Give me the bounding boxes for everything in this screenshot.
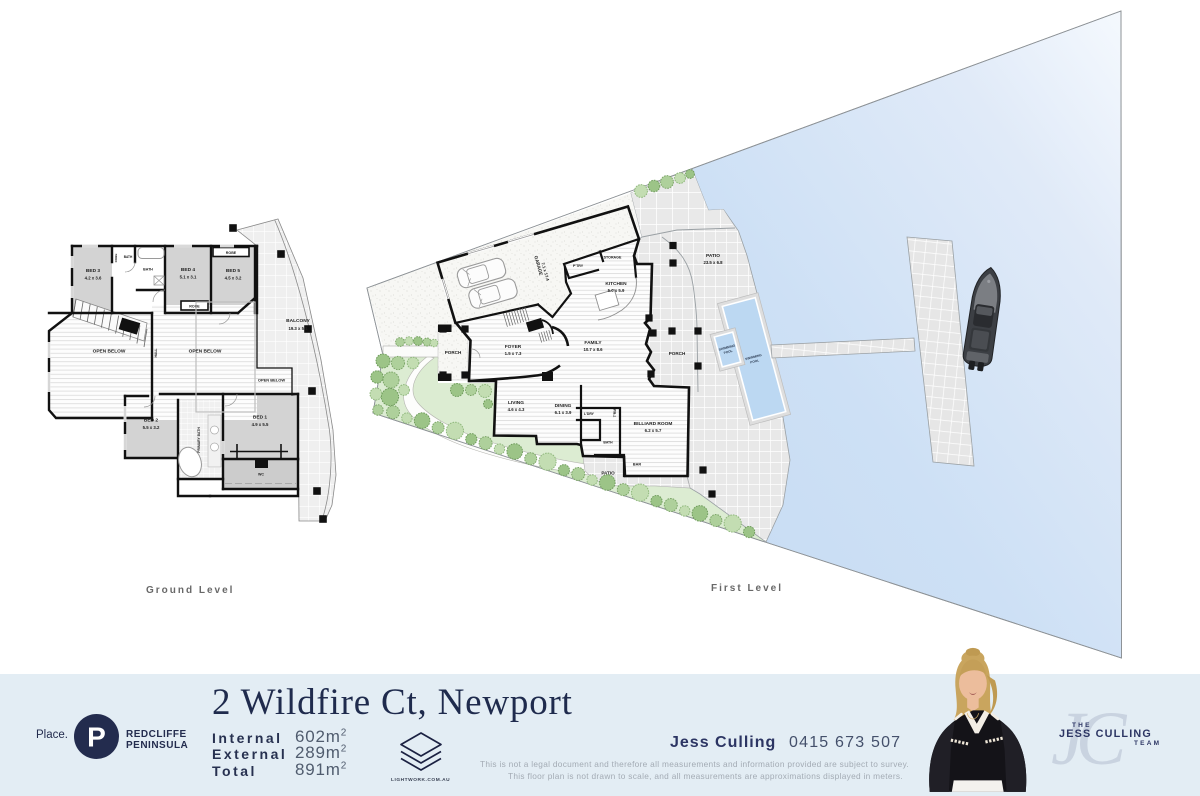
svg-text:6.1 x 3.9: 6.1 x 3.9 [555,410,572,415]
svg-text:ROBE: ROBE [189,305,200,309]
svg-text:4.6 x 4.3: 4.6 x 4.3 [508,407,525,412]
svg-text:4.5 x 3.2: 4.5 x 3.2 [225,276,242,281]
svg-text:OPEN BELOW: OPEN BELOW [258,378,286,383]
svg-text:4.9 x 5.5: 4.9 x 5.5 [252,422,269,427]
svg-text:PORCH: PORCH [445,350,462,355]
svg-text:5.5 x 3.2: 5.5 x 3.2 [143,425,160,430]
svg-text:4.2 x 3.6: 4.2 x 3.6 [85,276,102,281]
svg-text:BATH: BATH [143,268,153,272]
svg-text:FOYER: FOYER [505,344,522,350]
svg-text:PATIO: PATIO [706,253,720,259]
svg-text:BAR: BAR [633,463,641,467]
svg-text:PORCH: PORCH [669,351,686,356]
svg-text:WC: WC [258,473,264,477]
svg-text:BED 1: BED 1 [253,415,267,421]
svg-text:KITCHEN: KITCHEN [605,281,627,287]
svg-text:FAMILY: FAMILY [584,340,602,346]
svg-text:First Level: First Level [711,583,783,594]
svg-text:5.1 x 3.1: 5.1 x 3.1 [180,275,197,280]
svg-text:BALCONY: BALCONY [286,318,311,324]
svg-text:BED 4: BED 4 [181,267,195,273]
svg-text:PRIMARY BATH: PRIMARY BATH [197,427,201,453]
svg-text:T'RM: T'RM [613,409,617,417]
svg-text:BATH: BATH [124,255,133,259]
svg-text:BILLIARD ROOM: BILLIARD ROOM [634,421,673,427]
svg-text:10.7 x 8.6: 10.7 x 8.6 [583,347,603,352]
svg-text:PATIO: PATIO [601,471,615,476]
svg-text:OPEN BELOW: OPEN BELOW [189,349,222,355]
svg-text:1.5 x 7.3: 1.5 x 7.3 [505,351,522,356]
svg-text:ROBE: ROBE [114,254,118,263]
svg-text:BED 5: BED 5 [226,268,240,274]
svg-text:P: P [87,722,106,753]
svg-text:L'DRY: L'DRY [584,412,595,416]
svg-text:BED 2: BED 2 [144,418,158,424]
svg-text:6.2 x 5.7: 6.2 x 5.7 [645,428,662,433]
svg-text:Ground Level: Ground Level [146,585,234,596]
svg-text:OPEN BELOW: OPEN BELOW [93,349,126,355]
svg-text:23.5 x 6.8: 23.5 x 6.8 [703,260,723,265]
svg-text:BATH: BATH [603,441,613,445]
svg-text:DINING: DINING [555,403,572,409]
svg-text:BED 3: BED 3 [86,268,100,274]
svg-text:ROBE: ROBE [226,251,237,255]
svg-text:P'TRY: P'TRY [573,264,584,268]
svg-text:LIVING: LIVING [508,400,524,406]
svg-text:5.0 x 5.9: 5.0 x 5.9 [608,288,625,293]
svg-text:STORAGE: STORAGE [604,256,622,260]
svg-text:19.3 x 5.1: 19.3 x 5.1 [288,326,308,331]
svg-text:HALL: HALL [154,348,158,357]
